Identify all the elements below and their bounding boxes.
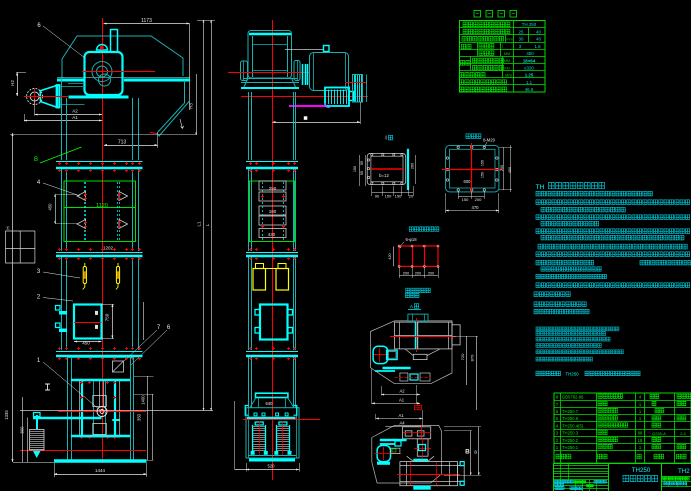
svg-text:46.5: 46.5 [525, 87, 534, 92]
svg-text:TH250.2: TH250.2 [562, 438, 579, 443]
svg-text:mm: mm [506, 37, 513, 42]
svg-text:1335: 1335 [4, 410, 9, 420]
svg-text:TH250.4(5): TH250.4(5) [562, 423, 584, 428]
svg-text:520: 520 [268, 463, 276, 468]
svg-text:KN: KN [504, 66, 510, 70]
svg-text:150: 150 [395, 194, 402, 199]
svg-text:450: 450 [48, 203, 53, 211]
svg-text:40: 40 [536, 37, 541, 42]
svg-text:150: 150 [481, 160, 485, 166]
svg-text:TH: TH [536, 184, 545, 191]
svg-text:20: 20 [409, 194, 414, 199]
svg-text:55: 55 [360, 171, 364, 175]
svg-text:150: 150 [462, 197, 469, 202]
svg-text:150: 150 [353, 166, 357, 172]
svg-text:250: 250 [269, 186, 277, 191]
svg-text:A4: A4 [399, 421, 405, 426]
svg-text:H: H [6, 226, 11, 229]
svg-text:a: a [474, 450, 477, 456]
svg-text:640: 640 [266, 401, 274, 406]
svg-text:1400: 1400 [140, 395, 145, 405]
svg-text:600: 600 [464, 179, 472, 184]
svg-text:720: 720 [460, 353, 465, 360]
svg-text:B: B [465, 449, 470, 456]
svg-text:1.6: 1.6 [534, 44, 541, 49]
svg-text:1173: 1173 [141, 18, 152, 24]
svg-text:1.1: 1.1 [526, 80, 533, 85]
svg-text:≥320: ≥320 [524, 65, 534, 70]
svg-text:200: 200 [475, 197, 482, 202]
svg-text:430: 430 [268, 232, 276, 237]
svg-text:1120: 1120 [96, 203, 108, 209]
svg-text:A1: A1 [399, 398, 405, 403]
svg-text:1202: 1202 [103, 245, 114, 250]
svg-text:180: 180 [269, 209, 277, 214]
svg-text:TH2: TH2 [678, 468, 690, 475]
svg-text:8-M20: 8-M20 [483, 138, 496, 143]
svg-text:TH250: TH250 [565, 372, 579, 377]
svg-text:40: 40 [536, 29, 541, 34]
svg-text:450: 450 [82, 340, 90, 345]
svg-text:800: 800 [20, 426, 25, 434]
svg-text:150: 150 [385, 194, 392, 199]
svg-text:TH250.1: TH250.1 [562, 445, 579, 450]
svg-text:90: 90 [375, 194, 380, 199]
svg-text:A2: A2 [72, 109, 78, 114]
svg-text:260: 260 [411, 163, 415, 169]
svg-text:200: 200 [415, 272, 421, 276]
svg-text:2.4: 2.4 [680, 431, 686, 436]
svg-text:18: 18 [638, 438, 643, 443]
svg-text:b=12: b=12 [379, 173, 389, 178]
svg-text:55: 55 [360, 161, 364, 165]
svg-text:450: 450 [508, 167, 512, 173]
svg-text:TH 250: TH 250 [522, 22, 537, 27]
svg-text:470: 470 [472, 205, 480, 210]
svg-text:A2: A2 [399, 389, 405, 394]
svg-text:88: 88 [638, 431, 643, 436]
svg-text:H3: H3 [189, 103, 194, 109]
svg-text:A1: A1 [398, 413, 404, 418]
svg-text:GB5782-86: GB5782-86 [562, 395, 584, 400]
svg-text:713: 713 [118, 140, 127, 146]
svg-text:M/S: M/S [505, 74, 512, 78]
svg-text:420: 420 [388, 253, 392, 259]
svg-text:TH250.6: TH250.6 [562, 416, 579, 421]
svg-text:6-φ18: 6-φ18 [405, 237, 417, 242]
svg-text:200: 200 [428, 272, 434, 276]
svg-text:Q235-A: Q235-A [652, 431, 666, 436]
svg-text:200: 200 [403, 272, 409, 276]
svg-text:H2: H2 [10, 80, 15, 86]
svg-text:870: 870 [470, 354, 475, 361]
svg-text:L1: L1 [197, 221, 202, 227]
svg-text:TH250.3: TH250.3 [562, 431, 579, 436]
svg-text:450: 450 [526, 51, 534, 56]
svg-text:1.25: 1.25 [525, 73, 534, 78]
svg-text:200: 200 [500, 165, 504, 171]
svg-text:TH250: TH250 [632, 467, 651, 474]
svg-text:30: 30 [519, 37, 524, 42]
svg-text:150: 150 [481, 172, 485, 178]
svg-text:B: B [34, 157, 38, 163]
svg-text:A1: A1 [72, 115, 78, 120]
svg-text:MM: MM [504, 52, 510, 56]
svg-text:l: l [502, 44, 503, 49]
svg-text:350: 350 [136, 413, 141, 421]
svg-text:1444: 1444 [95, 468, 106, 473]
svg-text:25: 25 [519, 29, 524, 34]
svg-text:MM: MM [504, 59, 510, 63]
svg-text:750: 750 [105, 313, 110, 321]
svg-text:18×64: 18×64 [523, 58, 536, 63]
svg-text:TH250.7: TH250.7 [562, 409, 579, 414]
